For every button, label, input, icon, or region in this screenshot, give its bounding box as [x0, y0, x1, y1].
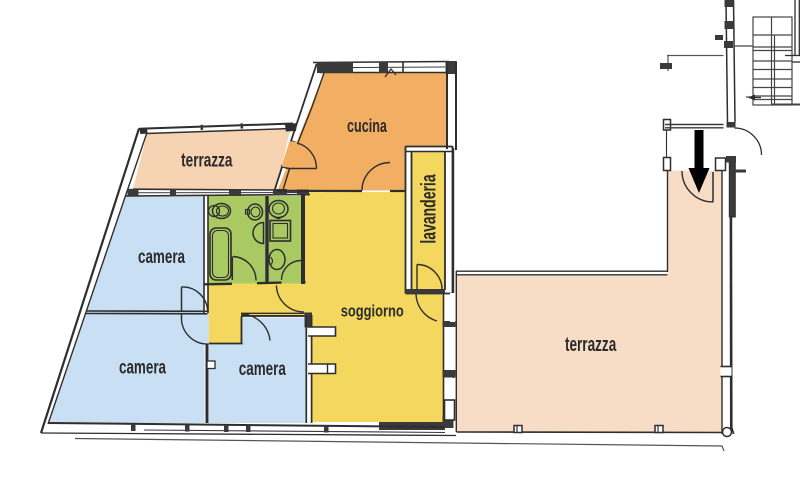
svg-text:terrazza: terrazza: [181, 149, 233, 171]
svg-text:camera: camera: [119, 356, 167, 378]
svg-text:soggiorno: soggiorno: [341, 303, 404, 321]
svg-text:terrazza: terrazza: [565, 332, 617, 356]
svg-text:lavanderia: lavanderia: [417, 174, 441, 244]
svg-text:camera: camera: [239, 358, 287, 380]
svg-text:camera: camera: [138, 246, 186, 268]
svg-text:cucina: cucina: [347, 116, 388, 137]
